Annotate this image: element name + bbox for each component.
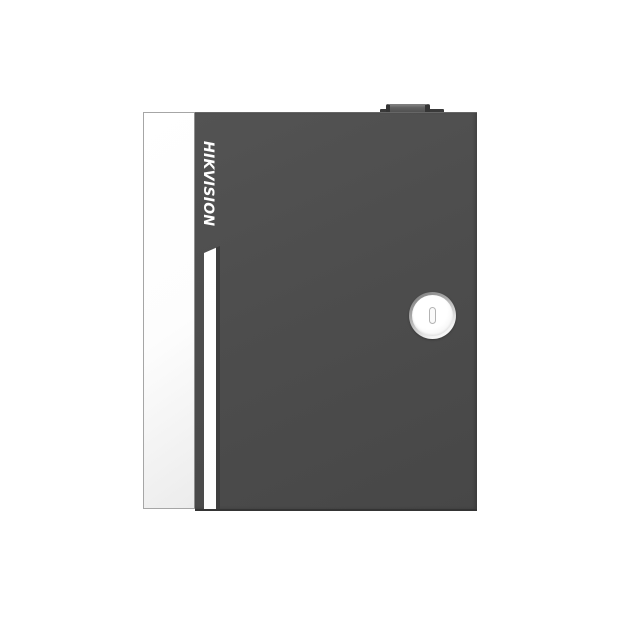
enclosure: HIKVISION — [143, 112, 477, 511]
keyhole-icon — [429, 307, 436, 324]
brand-logo-text: HIKVISION — [200, 141, 215, 226]
door-lock — [409, 292, 456, 339]
door-lock-face — [412, 295, 453, 336]
accent-stripe — [204, 246, 220, 509]
accent-stripe-shadow — [216, 246, 220, 509]
product-image: HIKVISION — [0, 0, 620, 620]
brand-logo: HIKVISION — [200, 141, 215, 233]
door-face: HIKVISION — [195, 112, 477, 511]
accent-stripe-face — [204, 246, 216, 509]
door-edge-panel — [143, 112, 195, 509]
